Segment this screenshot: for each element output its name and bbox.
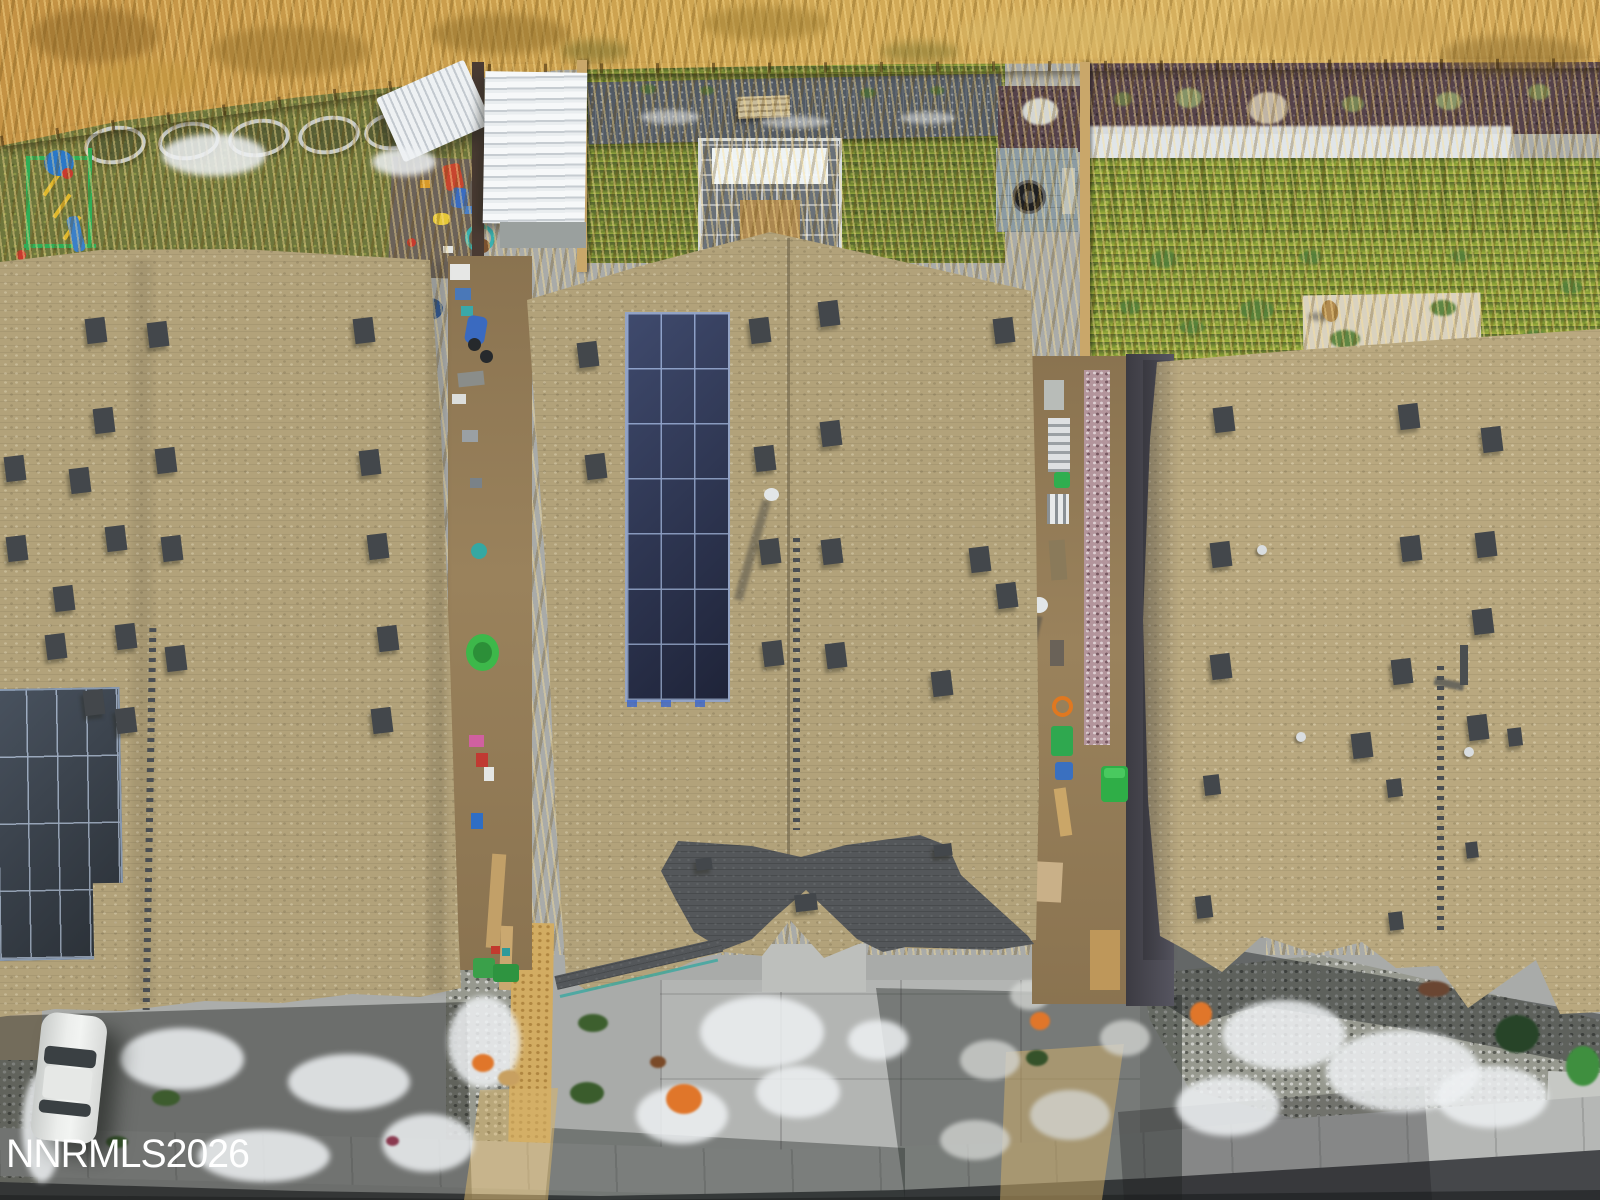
roof-vent xyxy=(933,843,952,857)
roof-vent xyxy=(695,857,712,871)
roof-vent xyxy=(794,893,818,913)
mls-watermark: NNRMLS2026 xyxy=(6,1132,249,1177)
aerial-photo: NNRMLS2026 xyxy=(0,0,1600,1200)
entry-roof-vents xyxy=(0,0,1600,1200)
